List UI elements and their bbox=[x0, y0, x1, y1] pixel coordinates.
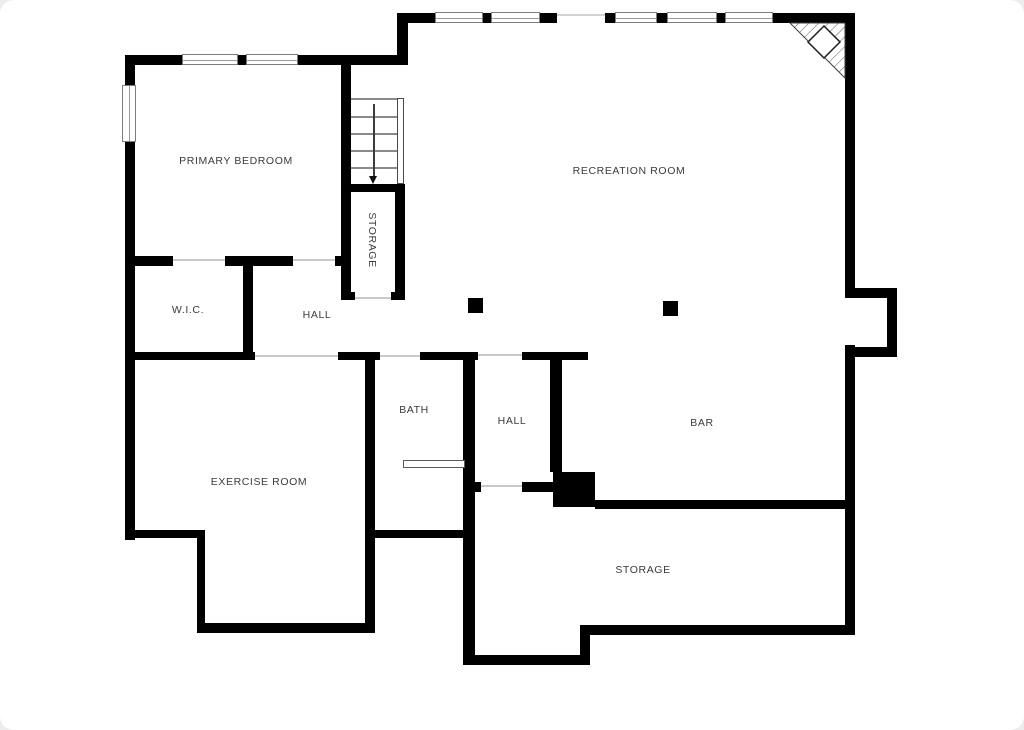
wall bbox=[483, 13, 491, 23]
window-icon bbox=[615, 12, 657, 23]
room-label-recreation-room: RECREATION ROOM bbox=[573, 165, 686, 177]
wall bbox=[125, 352, 255, 360]
column bbox=[468, 298, 483, 313]
window-mullion bbox=[183, 60, 237, 61]
window-icon bbox=[182, 54, 238, 65]
door-threshold bbox=[478, 485, 522, 487]
wall bbox=[717, 13, 725, 23]
vanity bbox=[403, 460, 465, 468]
wall bbox=[463, 352, 475, 665]
window-mullion bbox=[616, 18, 656, 19]
room-label-bar: BAR bbox=[690, 417, 713, 429]
wall bbox=[595, 500, 845, 509]
window-icon bbox=[246, 54, 298, 65]
room-label-storage-main: STORAGE bbox=[615, 564, 670, 576]
wall bbox=[855, 347, 897, 357]
door-threshold bbox=[478, 354, 522, 356]
wall bbox=[605, 13, 615, 23]
window-mullion bbox=[668, 18, 716, 19]
door-threshold bbox=[355, 297, 391, 299]
room-label-wic: W.I.C. bbox=[172, 304, 204, 316]
wall bbox=[238, 55, 246, 65]
wall bbox=[590, 625, 855, 635]
window-mullion bbox=[492, 18, 539, 19]
door-threshold bbox=[380, 355, 420, 357]
wall bbox=[657, 13, 667, 23]
window-mullion bbox=[726, 18, 772, 19]
room-label-bath: BATH bbox=[399, 404, 429, 416]
wall bbox=[125, 142, 135, 540]
room-label-hall-lower: HALL bbox=[498, 415, 527, 427]
wall bbox=[341, 292, 355, 300]
wall bbox=[475, 482, 481, 492]
stairs-down-arrow bbox=[373, 104, 375, 176]
window-icon bbox=[435, 12, 483, 23]
room-label-storage-under-stairs: STORAGE bbox=[366, 212, 378, 267]
wall-gap-line bbox=[557, 14, 605, 16]
door-threshold bbox=[255, 355, 338, 357]
wall bbox=[550, 352, 562, 472]
wall bbox=[125, 530, 205, 538]
wall bbox=[243, 262, 253, 354]
window-mullion bbox=[436, 18, 482, 19]
window-mullion bbox=[129, 86, 130, 141]
column bbox=[663, 301, 678, 316]
stairs-arrow-head bbox=[369, 176, 377, 184]
mechanical-box bbox=[553, 472, 595, 507]
wall bbox=[298, 55, 408, 65]
wall bbox=[391, 292, 405, 300]
wall bbox=[341, 63, 351, 300]
wall bbox=[197, 623, 373, 633]
wall bbox=[125, 55, 135, 85]
room-label-primary-bedroom: PRIMARY BEDROOM bbox=[179, 155, 293, 167]
wall bbox=[368, 530, 468, 538]
stair-rail bbox=[397, 98, 404, 184]
stair-tread bbox=[351, 98, 397, 100]
window-icon bbox=[122, 85, 136, 142]
wall bbox=[365, 352, 375, 633]
wall bbox=[522, 482, 553, 492]
wall bbox=[197, 530, 205, 633]
wall bbox=[465, 655, 590, 665]
wall bbox=[845, 345, 855, 635]
door-threshold bbox=[173, 259, 225, 261]
window-icon bbox=[491, 12, 540, 23]
window-icon bbox=[667, 12, 717, 23]
fireplace-icon bbox=[780, 13, 900, 83]
window-icon bbox=[725, 12, 773, 23]
wall bbox=[580, 625, 590, 665]
window-mullion bbox=[247, 60, 297, 61]
door-threshold bbox=[293, 259, 335, 261]
wall bbox=[540, 13, 557, 23]
wall bbox=[125, 256, 173, 266]
floor-plan: PRIMARY BEDROOMRECREATION ROOMSTORAGEW.I… bbox=[0, 0, 1024, 730]
room-label-hall-upper: HALL bbox=[303, 309, 332, 321]
wall bbox=[395, 184, 405, 300]
room-label-exercise-room: EXERCISE ROOM bbox=[211, 476, 307, 488]
wall bbox=[225, 256, 293, 266]
wall bbox=[400, 13, 435, 23]
